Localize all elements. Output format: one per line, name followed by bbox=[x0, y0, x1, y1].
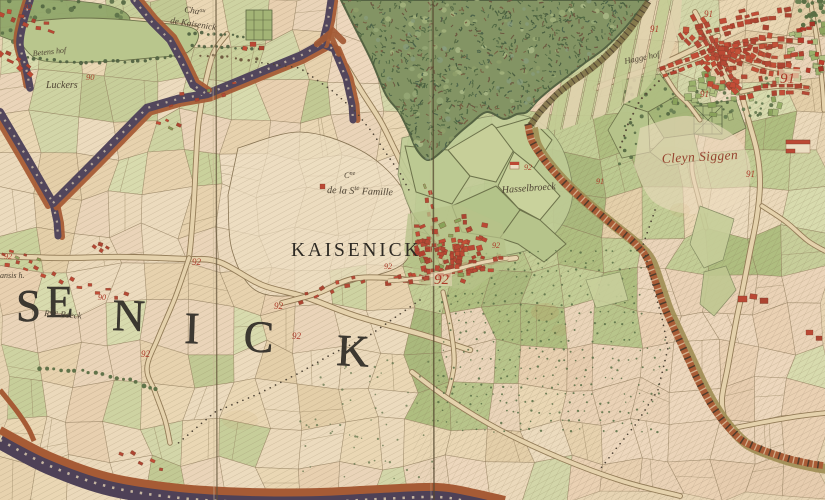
svg-text:91: 91 bbox=[704, 9, 713, 19]
svg-text:92: 92 bbox=[384, 262, 392, 271]
svg-text:C: C bbox=[242, 311, 275, 363]
svg-text:ansis h.: ansis h. bbox=[0, 271, 24, 280]
svg-text:KAISENICK: KAISENICK bbox=[291, 240, 421, 261]
svg-text:90: 90 bbox=[86, 72, 95, 82]
svg-text:91: 91 bbox=[700, 89, 709, 99]
svg-text:92: 92 bbox=[24, 3, 32, 12]
svg-text:92: 92 bbox=[192, 257, 202, 267]
svg-text:N: N bbox=[112, 290, 146, 341]
svg-text:90: 90 bbox=[98, 293, 106, 302]
svg-text:91: 91 bbox=[780, 71, 795, 87]
svg-text:K: K bbox=[335, 325, 371, 377]
svg-text:92: 92 bbox=[4, 252, 12, 261]
svg-text:92: 92 bbox=[141, 349, 151, 359]
svg-text:92: 92 bbox=[274, 301, 284, 311]
svg-text:I: I bbox=[184, 303, 201, 353]
svg-text:91: 91 bbox=[596, 177, 604, 186]
svg-text:92: 92 bbox=[492, 241, 500, 250]
svg-text:91: 91 bbox=[650, 24, 659, 34]
svg-text:S: S bbox=[16, 281, 41, 331]
svg-text:92: 92 bbox=[292, 331, 302, 341]
svg-text:92: 92 bbox=[434, 272, 450, 288]
svg-text:92: 92 bbox=[524, 163, 532, 172]
svg-text:Luckers: Luckers bbox=[45, 80, 78, 91]
svg-text:91: 91 bbox=[746, 169, 755, 179]
